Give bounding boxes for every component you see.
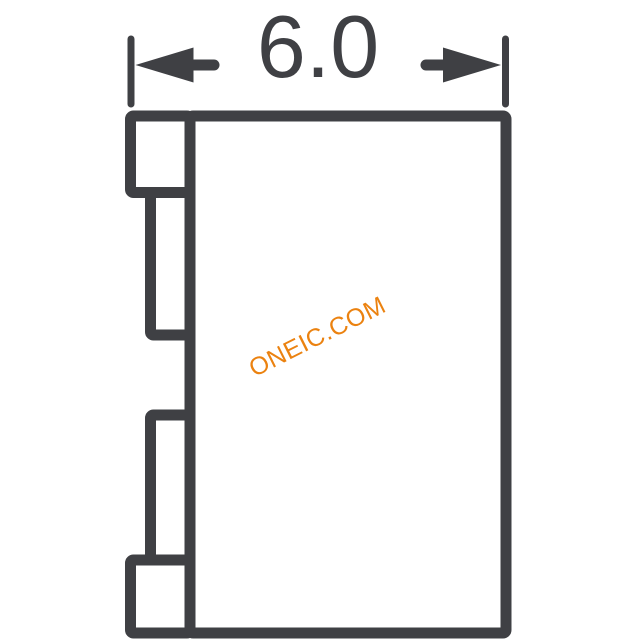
dimension-annotation: 6.0 [131,0,506,104]
arrow-right-icon [443,48,501,83]
terminal-lower-pin [151,415,191,560]
dimension-value-label: 6.0 [257,0,379,96]
terminal-top-tab [131,116,191,193]
terminal-bottom-tab [131,560,191,633]
drawing-canvas: 6.0 ONEIC.COM [0,0,640,640]
package-outline-drawing: 6.0 ONEIC.COM [0,0,640,640]
component-outline [131,116,507,633]
terminal-upper-pin [151,193,191,336]
arrow-left-icon [136,48,194,83]
component-body [190,116,506,633]
